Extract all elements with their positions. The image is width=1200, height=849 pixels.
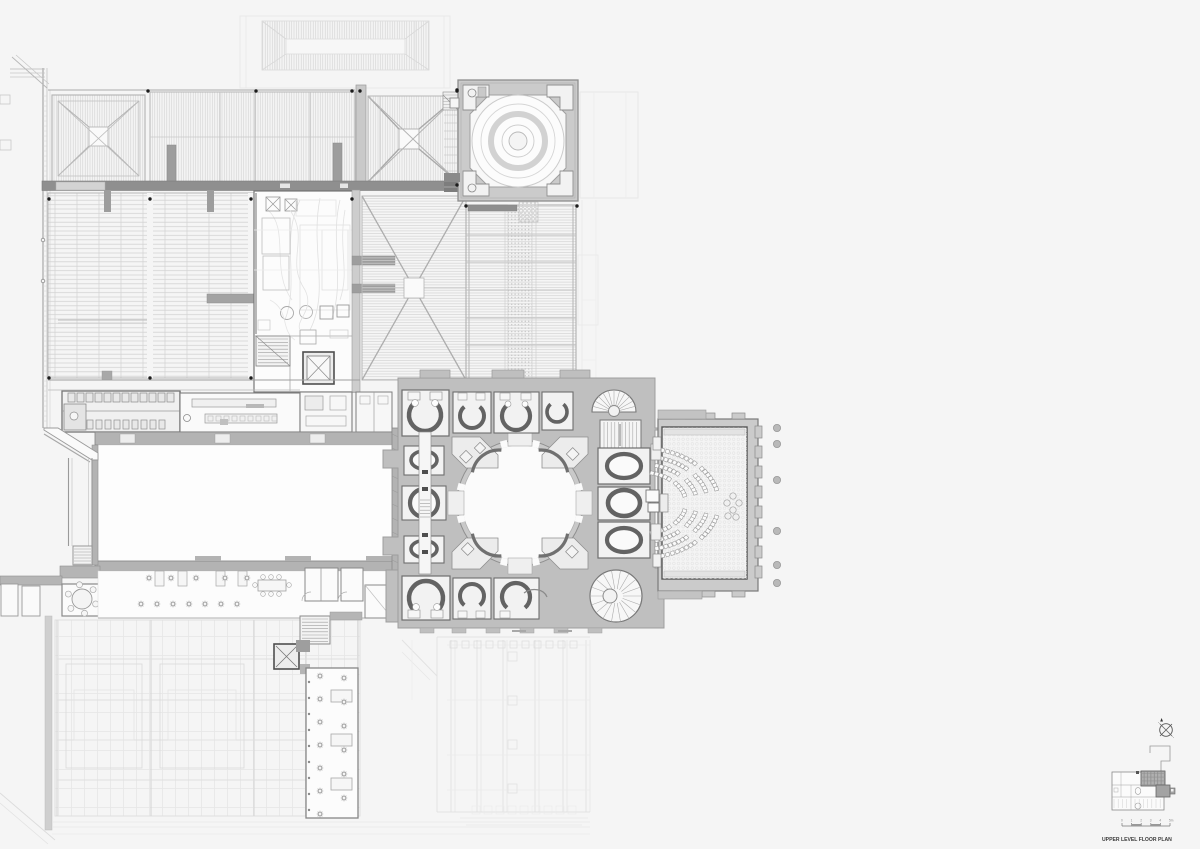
svg-text:5m: 5m <box>1169 819 1174 823</box>
svg-text:3: 3 <box>1150 819 1152 823</box>
svg-text:2: 2 <box>1140 819 1142 823</box>
svg-text:1: 1 <box>1131 819 1133 823</box>
svg-text:0: 0 <box>1121 819 1123 823</box>
svg-text:UPPER LEVEL FLOOR PLAN: UPPER LEVEL FLOOR PLAN <box>1102 837 1172 843</box>
svg-text:4: 4 <box>1159 819 1161 823</box>
